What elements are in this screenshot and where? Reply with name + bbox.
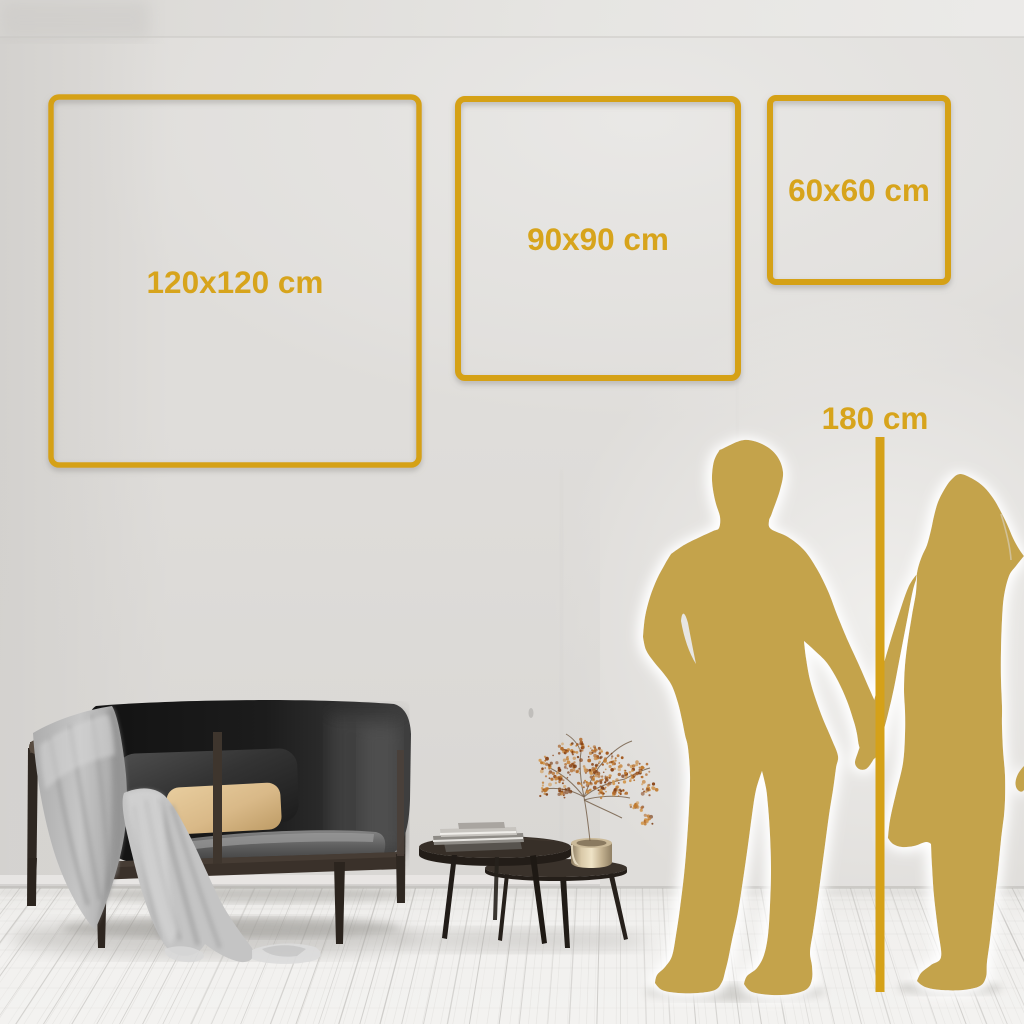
svg-text:60x60 cm: 60x60 cm	[788, 172, 930, 208]
svg-text:120x120 cm: 120x120 cm	[147, 264, 324, 300]
svg-text:90x90 cm: 90x90 cm	[527, 221, 669, 257]
svg-text:180 cm: 180 cm	[822, 400, 929, 436]
